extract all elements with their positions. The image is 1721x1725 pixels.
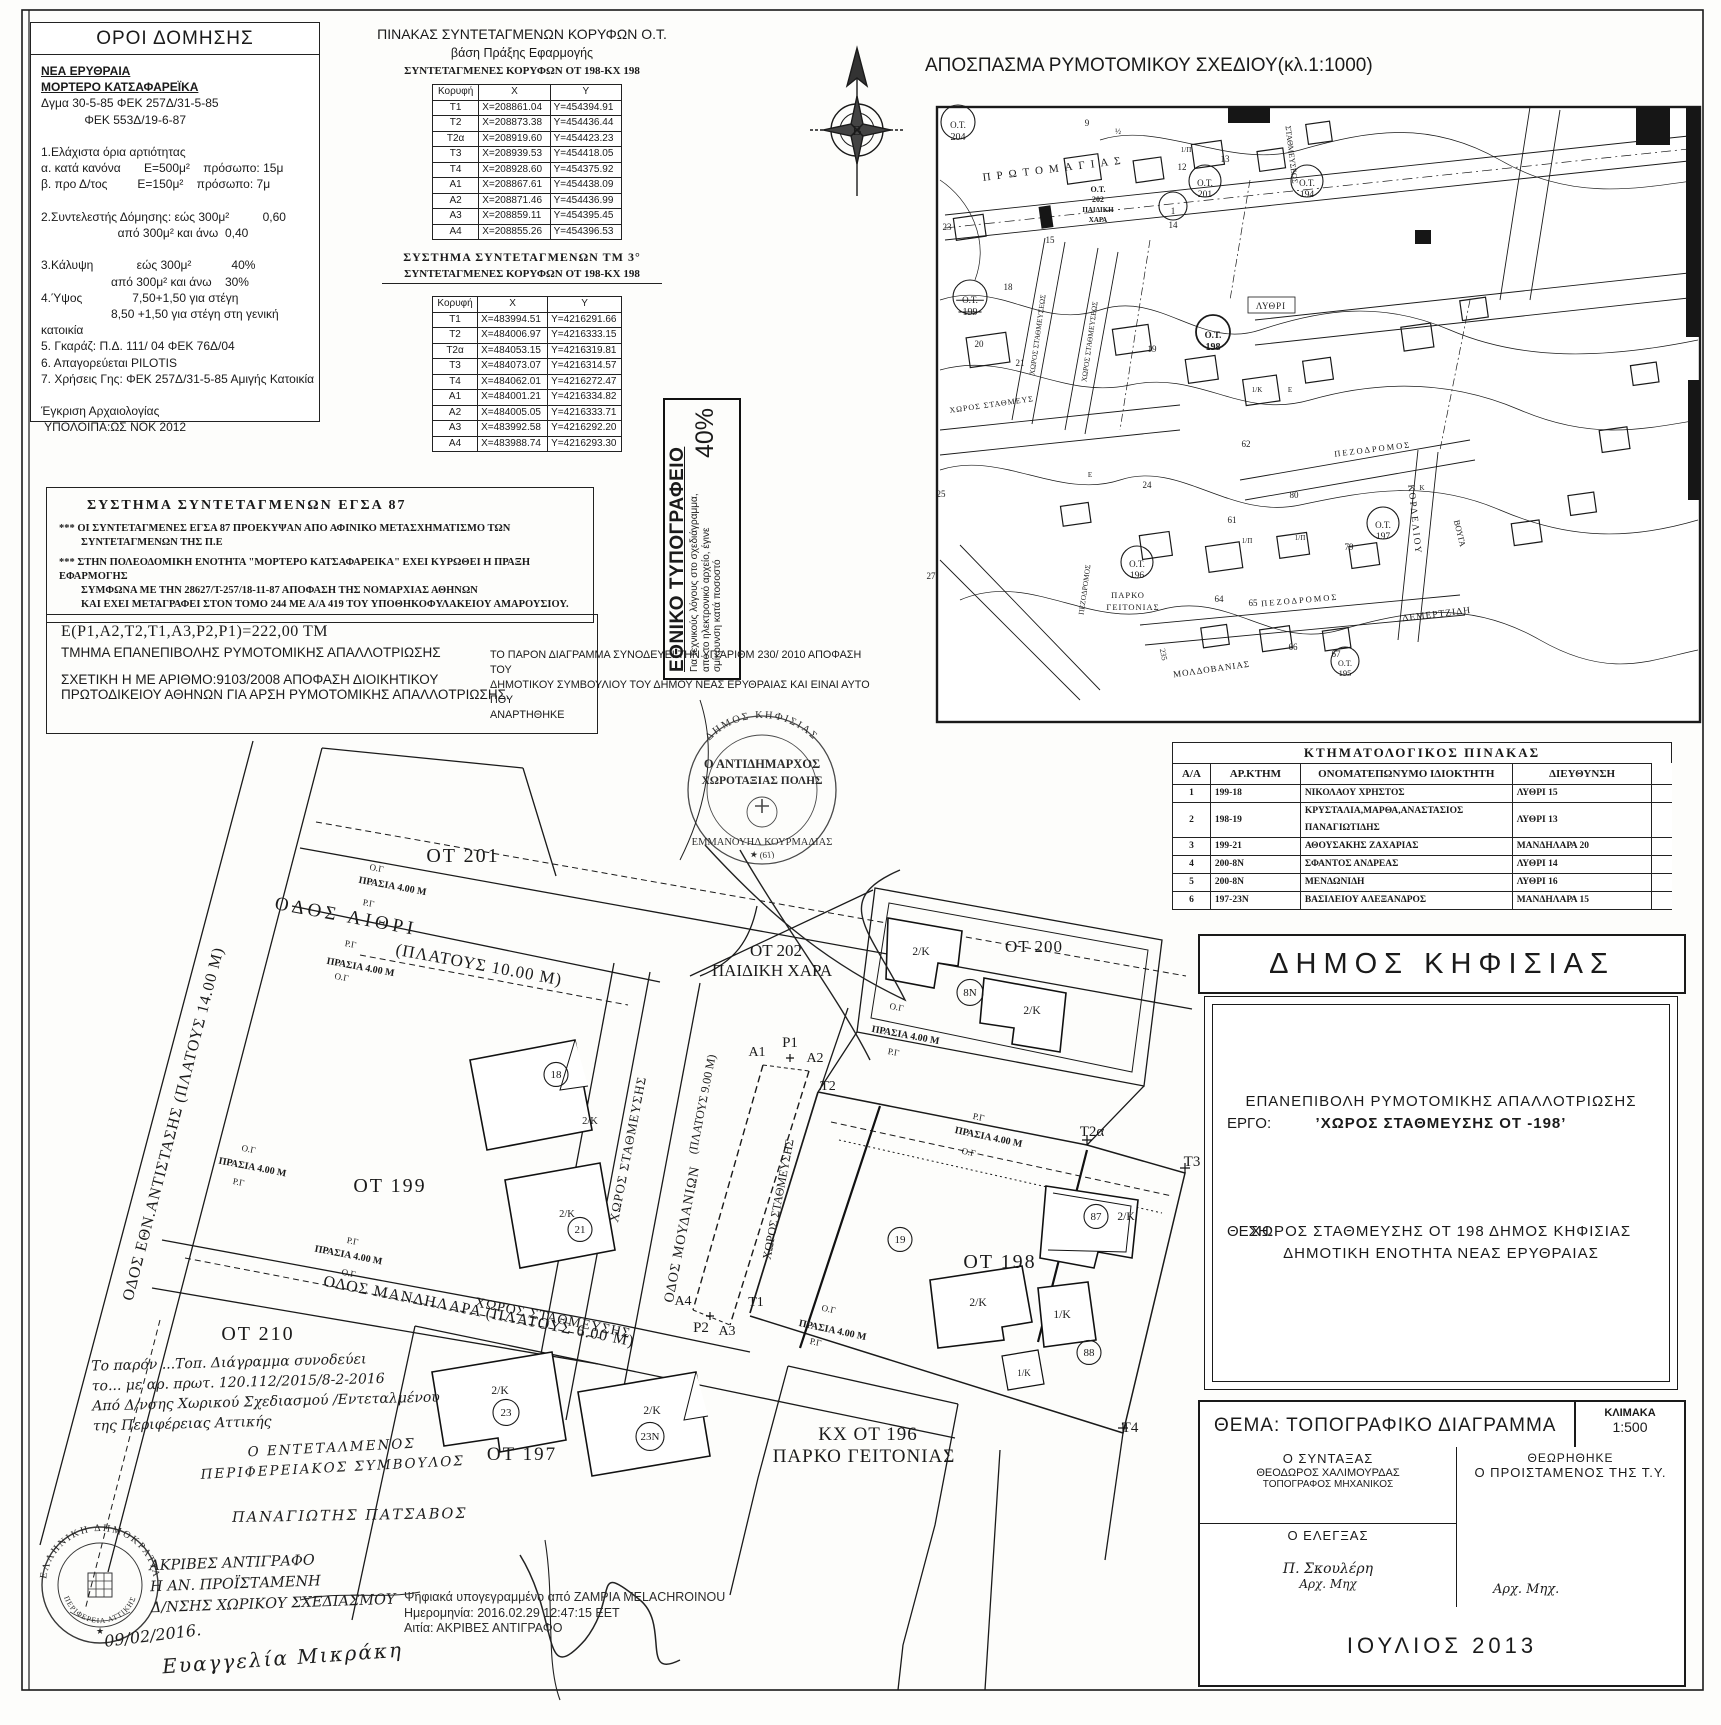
table-cell: X=208871.46: [479, 193, 550, 209]
col-header: X: [478, 297, 548, 313]
site-plan-label: Ο.Γ: [821, 1303, 837, 1316]
project-box-inner: ΕΡΓΟ: ΕΠΑΝΕΠΙΒΟΛΗ ΡΥΜΟΤΟΜΙΚΗΣ ΑΠΑΛΛΟΤΡΙΩ…: [1212, 1004, 1670, 1382]
inset-ot-195-num: 195: [1339, 668, 1352, 678]
inset-map-label: 25: [937, 489, 947, 499]
street-xoros-stath-1: ΧΩΡΟΣ ΣΤΑΘΜΕΥΣΗΣ: [606, 1075, 649, 1224]
table-cell: ΚΡΥΣΤΑΛΙΑ,ΜΑΡΘΑ,ΑΝΑΣΤΑΣΙΟΣ ΠΑΝΑΓΙΩΤΙΔΗΣ: [1300, 803, 1512, 838]
digsig-line: Ημερομηνία: 2016.02.29 12:47:15 EET: [404, 1606, 725, 1622]
table-cell: X=484001.21: [478, 390, 548, 406]
col-header: Κορυφή: [433, 297, 478, 313]
block-ot-210: ΟΤ 210: [221, 1323, 294, 1345]
inset-map-label: 23: [943, 222, 953, 232]
table-cell: ΣΦΑΝΤΟΣ ΑΝΔΡΕΑΣ: [1300, 856, 1512, 874]
egsa-note: *** ΟΙ ΣΥΝΤΕΤΑΓΜΕΝΕΣ ΕΓΣΑ 87 ΠΡΟΕΚΥΨΑΝ Α…: [59, 522, 581, 536]
site-plan-label: ΠΡΑΣΙΑ 4.00 Μ: [871, 1024, 941, 1047]
table-row: Α3X=483992.58Y=4216292.20: [433, 421, 622, 437]
site-plan-label: Ο.Γ: [241, 1143, 257, 1155]
table-cell: [1652, 874, 1672, 892]
table-cell: Y=454436.44: [550, 116, 621, 132]
site-plan-label: ΠΡΑΣΙΑ 4.00 Μ: [218, 1156, 288, 1180]
handnote-certified-copy: ΑΚΡΙΒΕΣ ΑΝΤΙΓΡΑΦΟ Η ΑΝ. ΠΡΟΪΣΤΑΜΕΝΗ Δ/ΝΣ…: [149, 1548, 396, 1620]
egsa-note: ΣΥΝΤΕΤΑΓΜΕΝΩΝ ΤΗΣ Π.Ε: [81, 536, 581, 550]
inset-map-label: Ε: [1288, 386, 1292, 394]
block-kx-ot-196-l2: ΠΑΡΚΟ ΓΕΙΤΟΝΙΑΣ: [773, 1446, 956, 1467]
pt-t2: Τ2: [820, 1079, 836, 1094]
table-cell: Y=454436.99: [550, 193, 621, 209]
pt-t2a: Τ2α: [1080, 1124, 1105, 1140]
inset-map-label: 18: [1004, 282, 1014, 292]
table-cell: ΜΑΝΔΗΛΑΡΑ 20: [1512, 838, 1652, 856]
inset-map-label: Κ: [1419, 484, 1424, 492]
table-cell: ΛΥΘΡΙ 16: [1512, 874, 1652, 892]
table-cell: Τ2: [433, 328, 478, 344]
table-cell: Τ1: [433, 312, 478, 328]
inset-map-label: 65: [1249, 598, 1259, 608]
table-cell: ΛΥΘΡΙ 14: [1512, 856, 1652, 874]
block-ot-202: ΟΤ 202: [750, 941, 802, 960]
inset-map-label: 12: [1178, 162, 1187, 172]
street-mandilara: ΟΔΟΣ ΜΑΝΔΗΛΑΡΑ (ΠΛΑΤΟΥΣ 6.00 Μ): [322, 1273, 636, 1350]
egsa-note: ΚΑΙ ΕΧΕΙ ΜΕΤΑΓΡΑΦΕΙ ΣΤΟΝ ΤΟΜΟ 244 ΜΕ Α/Α…: [81, 598, 581, 612]
scale-cell: ΚΛΙΜΑΚΑ 1:500: [1574, 1402, 1684, 1449]
table-row: 4200-8ΝΣΦΑΝΤΟΣ ΑΝΔΡΕΑΣΛΥΘΡΙ 14: [1173, 856, 1673, 874]
building-terms-line: 4.Ύψος 7,50+1,50 για στέγη: [41, 290, 309, 306]
block-ot-197: ΟΤ 197: [487, 1444, 557, 1465]
block-ot-200: ΟΤ 200: [1005, 937, 1063, 956]
street-moudanion-width: (ΠΛΑΤΟΥΣ 9.00 Μ): [686, 1053, 719, 1155]
table-cell: X=484053.15: [478, 343, 548, 359]
table-row: 1199-18ΝΙΚΟΛΑΟΥ ΧΡΗΣΤΟΣΛΥΘΡΙ 15: [1173, 785, 1673, 803]
site-plan-label: ΠΡΑΣΙΑ 4.00 Μ: [798, 1318, 868, 1343]
site-plan-label: Ρ.Γ: [887, 1046, 900, 1058]
subject-title: ΘΕΜΑ: ΤΟΠΟΓΡΑΦΙΚΟ ΔΙΑΓΡΑΜΜΑ: [1200, 1402, 1574, 1449]
table-cell: Y=4216292.20: [548, 421, 622, 437]
table-row: 5200-8ΝΜΕΝΔΩΝΙΔΗΛΥΘΡΙ 16: [1173, 874, 1673, 892]
inset-map-label: 62: [1242, 439, 1251, 449]
bld-2k-ot200-a: 2/Κ: [912, 946, 930, 958]
table-cell: [1652, 892, 1672, 910]
table-cell: Y=454423.23: [550, 131, 621, 147]
bld-88: 88: [1084, 1347, 1096, 1359]
council-annotation: ΤΟ ΠΑΡΟΝ ΔΙΑΓΡΑΜΜΑ ΣΥΝΟΔΕΥΕΙ ΤΗΝ ΥΠ'ΑΡΙΘ…: [490, 648, 870, 723]
table-cell: X=208867.61: [479, 178, 550, 194]
col-header: [1652, 764, 1672, 785]
inset-ot-202: Ο.Τ.: [1091, 185, 1106, 194]
table-row: Τ3X=484073.07Y=4216314.57: [433, 359, 622, 375]
table-cell: Τ3: [433, 359, 478, 375]
street-moudanion: ΟΔΟΣ ΜΟΥΔΑΝΙΩΝ: [662, 1165, 703, 1304]
table-cell: Y=454418.05: [550, 147, 621, 163]
building-terms-line: [41, 128, 309, 144]
location-line-2: ΔΗΜΟΤΙΚΗ ΕΝΟΤΗΤΑ ΝΕΑΣ ΕΡΥΘΡΑΙΑΣ: [1213, 1245, 1669, 1262]
building-terms-line: 7. Χρήσεις Γης: ΦΕΚ 257Δ/31-5-85 Αμιγής …: [41, 371, 309, 387]
inset-frac-num: 1: [1171, 206, 1176, 216]
site-plan-label: Ρ.Γ: [972, 1111, 985, 1123]
table-row: Τ1X=208861.04Y=454394.91: [433, 100, 622, 116]
building-terms-body: ΝΕΑ ΕΡΥΘΡΑΙΑΜΟΡΤΕΡΟ ΚΑΤΣΑΦΑΡΕΪΚΑΔγμα 30-…: [31, 55, 319, 444]
table-cell: X=208861.04: [479, 100, 550, 116]
table-row: Α1X=208867.61Y=454438.09: [433, 178, 622, 194]
pt-a3: Α3: [718, 1324, 735, 1339]
inset-ot-194-num: 194: [1300, 190, 1315, 200]
area-formula: Ε(Ρ1,Α2,Τ2,Τ1,Α3,Ρ2,Ρ1)=222,00 ΤΜ: [61, 623, 583, 641]
cadastral-title: ΚΤΗΜΑΤΟΛΟΓΙΚΟΣ ΠΙΝΑΚΑΣ: [1172, 742, 1672, 763]
table-row: Α2X=208871.46Y=454436.99: [433, 193, 622, 209]
col-header: ΔΙΕΥΘΥΝΣΗ: [1512, 764, 1652, 785]
handnote-protocol: Το παρόν ...Τοπ. Διάγραμμα συνοδεύει το.…: [91, 1347, 441, 1436]
building-terms-line: από 300μ² και άνω 30%: [41, 274, 309, 290]
egsa-title: ΣΥΣΤΗΜΑ ΣΥΝΤΕΤΑΓΜΕΝΩΝ ΕΓΣΑ 87: [87, 498, 581, 514]
table-row: Τ2αX=484053.15Y=4216319.81: [433, 343, 622, 359]
table-cell: Τ1: [433, 100, 479, 116]
table-cell: Α1: [433, 178, 479, 194]
pt-t4: Τ4: [1122, 1420, 1139, 1436]
table-row: Α2X=484005.05Y=4216333.71: [433, 405, 622, 421]
stamp-title-1: Ο ΑΝΤΙΔΗΜΑΡΧΟΣ: [704, 757, 820, 771]
table-row: Τ4X=484062.01Y=4216272.47: [433, 374, 622, 390]
inset-ot-198-num: 198: [1206, 342, 1221, 353]
bld-18: 18: [551, 1069, 563, 1081]
table-cell: ΜΑΝΔΗΛΑΡΑ 15: [1512, 892, 1652, 910]
table-cell: 5: [1173, 874, 1211, 892]
drafter-label: Ο ΣΥΝΤΑΞΑΣ: [1200, 1451, 1456, 1466]
coords-table-tm3: Κορυφή X Y Τ1X=483994.51Y=4216291.66Τ2X=…: [432, 296, 622, 452]
table-cell: X=208873.38: [479, 116, 550, 132]
inset-ot-202-l1: ΠΑΙΔΙΚΗ: [1082, 206, 1114, 214]
table-cell: Y=4216272.47: [548, 374, 622, 390]
approved-label: ΘΕΩΡΗΘΗΚΕ: [1457, 1451, 1684, 1465]
block-kx-ot-196: ΚΧ ΟΤ 196: [818, 1424, 917, 1445]
approver-title: Αρχ. Μηχ.: [1493, 1582, 1559, 1597]
project-line-1: ΕΠΑΝΕΠΙΒΟΛΗ ΡΥΜΟΤΟΜΙΚΗΣ ΑΠΑΛΛΟΤΡΙΩΣΗΣ: [1213, 1093, 1669, 1110]
digsig-line: Αιτία: ΑΚΡΙΒΕΣ ΑΝΤΙΓΡΑΦΟ: [404, 1621, 725, 1637]
inset-map-label: 21: [1016, 358, 1025, 368]
checker-label: Ο ΕΛΕΓΞΑΣ: [1200, 1528, 1456, 1543]
bld-19: 19: [895, 1234, 907, 1246]
inset-map-label: 79: [1345, 542, 1355, 552]
building-terms-line: από 300μ² και άνω 0,40: [41, 225, 309, 241]
inset-map-label: 13: [1221, 154, 1231, 164]
inset-ot-197: Ο.Τ.: [1375, 520, 1391, 530]
table-cell: 6: [1173, 892, 1211, 910]
vice-mayor-signature: [680, 700, 905, 1060]
pt-p1: Ρ1: [782, 1035, 798, 1051]
building-terms-line: ΦΕΚ 553Δ/19-6-87: [41, 112, 309, 128]
table-cell: ΒΑΣΙΛΕΙΟΥ ΑΛΕΞΑΝΔΡΟΣ: [1300, 892, 1512, 910]
table-row: 3199-21ΑΘΟΥΣΑΚΗΣ ΖΑΧΑΡΙΑΣΜΑΝΔΗΛΑΡΑ 20: [1173, 838, 1673, 856]
printing-title: ΕΘΝΙΚΟ ΤΥΠΟΓΡΑΦΕΙΟ: [667, 406, 689, 672]
approver-cell: ΘΕΩΡΗΘΗΚΕ Ο ΠΡΟΙΣΤΑΜΕΝΟΣ ΤΗΣ Τ.Υ. Αρχ. Μ…: [1457, 1447, 1684, 1607]
project-box: ΕΡΓΟ: ΕΠΑΝΕΠΙΒΟΛΗ ΡΥΜΟΤΟΜΙΚΗΣ ΑΠΑΛΛΟΤΡΙΩ…: [1204, 996, 1678, 1390]
location-line-1: ΧΩΡΟΣ ΣΤΑΘΜΕΥΣΗΣ ΟΤ 198 ΔΗΜΟΣ ΚΗΦΙΣΙΑΣ: [1213, 1223, 1669, 1240]
table-row: 6197-23ΝΒΑΣΙΛΕΙΟΥ ΑΛΕΞΑΝΔΡΟΣΜΑΝΔΗΛΑΡΑ 15: [1173, 892, 1673, 910]
building-terms-line: Δγμα 30-5-85 ΦΕΚ 257Δ/31-5-85: [41, 95, 309, 111]
table-cell: Α3: [433, 421, 478, 437]
annotation-line: ΤΟ ΠΑΡΟΝ ΔΙΑΓΡΑΜΜΑ ΣΥΝΟΔΕΥΕΙ ΤΗΝ ΥΠ'ΑΡΙΘ…: [490, 648, 870, 678]
table-cell: 4: [1173, 856, 1211, 874]
checker-signature: Π. Σκουλέρη: [1200, 1561, 1456, 1577]
inset-ot-201: Ο.Τ.: [1197, 178, 1213, 188]
col-header: Κορυφή: [433, 85, 479, 101]
coords-table-title: ΠΙΝΑΚΑΣ ΣΥΝΤΕΤΑΓΜΕΝΩΝ ΚΟΡΥΦΩΝ Ο.Τ.: [362, 26, 682, 42]
inset-ot-197-num: 197: [1376, 532, 1391, 542]
street-lithri: ΟΔΟΣ ΛΙΘΡΙ: [273, 893, 419, 940]
coords-table-subtitle: βάση Πράξης Εφαρμογής: [362, 46, 682, 60]
table-cell: Α2: [433, 193, 479, 209]
checker-title: Αρχ. Μηχ: [1200, 1577, 1456, 1591]
inset-map-label: 27: [927, 571, 937, 581]
municipality-title: ΔΗΜΟΣ ΚΗΦΙΣΙΑΣ: [1198, 934, 1686, 994]
table-cell: X=483988.74: [478, 436, 548, 452]
table-cell: Α2: [433, 405, 478, 421]
table-row: Α4X=208855.26Y=454396.53: [433, 224, 622, 240]
pt-a4: Α4: [674, 1294, 691, 1309]
scale-label: ΚΛΙΜΑΚΑ: [1576, 1407, 1684, 1419]
table-cell: X=208855.26: [479, 224, 550, 240]
building-terms-line: 2.Συντελεστής Δόμησης: εώς 300μ² 0,60: [41, 209, 309, 225]
table-row: Τ4X=208928.60Y=454375.92: [433, 162, 622, 178]
project-line-2: ’ΧΩΡΟΣ ΣΤΑΘΜΕΥΣΗΣ ΟΤ -198’: [1213, 1115, 1669, 1132]
annotation-line: ΑΝΑΡΤΗΘΗΚΕ: [490, 708, 870, 723]
site-plan-label: Ρ.Γ: [346, 1235, 359, 1247]
inset-map-label: 67: [1332, 649, 1342, 659]
drafter-cell: Ο ΣΥΝΤΑΞΑΣ ΘΕΟΔΩΡΟΣ ΧΑΛΙΜΟΥΡΔΑΣ ΤΟΠΟΓΡΑΦ…: [1200, 1447, 1456, 1524]
table-row: Τ2αX=208919.60Y=454423.23: [433, 131, 622, 147]
table-row: Τ3X=208939.53Y=454418.05: [433, 147, 622, 163]
table-cell: Y=4216314.57: [548, 359, 622, 375]
north-compass: Β: [810, 48, 904, 196]
inset-map-label: 15: [1046, 235, 1056, 245]
table-cell: Τ4: [433, 162, 479, 178]
col-header: X: [479, 85, 550, 101]
table-cell: X=208859.11: [479, 209, 550, 225]
building-terms-line: [41, 193, 309, 209]
inset-map-label: 1/Π: [1181, 146, 1192, 154]
building-terms-line: 8,50 +1,50 για στέγη στη γενική: [41, 306, 309, 322]
inset-ot-202-l2: ΧΑΡΑ: [1089, 216, 1107, 224]
table-cell: ΜΕΝΔΩΝΙΔΗ: [1300, 874, 1512, 892]
scale-value: 1:500: [1576, 1419, 1684, 1435]
bld-2k-ot197-a: 2/Κ: [491, 1385, 509, 1397]
inset-map-label: 24: [1143, 480, 1153, 490]
table-cell: Τ3: [433, 147, 479, 163]
building-terms-line: 3.Κάλυψη εώς 300μ² 40%: [41, 257, 309, 273]
table-cell: Y=454396.53: [550, 224, 621, 240]
egsa-note: *** ΣΤΗΝ ΠΟΛΕΟΔΟΜΙΚΗ ΕΝΟΤΗΤΑ "ΜΟΡΤΕΡΟ ΚΑ…: [59, 556, 581, 584]
building-terms-line: ΜΟΡΤΕΡΟ ΚΑΤΣΑΦΑΡΕΪΚΑ: [41, 79, 309, 95]
table-cell: Τ2: [433, 116, 479, 132]
table-cell: [1652, 803, 1672, 838]
table-cell: ΑΘΟΥΣΑΚΗΣ ΖΑΧΑΡΙΑΣ: [1300, 838, 1512, 856]
bld-1k-ot198: 1/Κ: [1053, 1309, 1071, 1321]
stamp-title-2: ΧΩΡΟΤΑΞΙΑΣ ΠΟΛΗΣ: [701, 775, 822, 787]
building-terms-box: ΟΡΟΙ ΔΟΜΗΣΗΣ ΝΕΑ ΕΡΥΘΡΑΙΑΜΟΡΤΕΡΟ ΚΑΤΣΑΦΑ…: [30, 22, 320, 422]
table-cell: 199-18: [1210, 785, 1300, 803]
block-ot-199: ΟΤ 199: [353, 1175, 426, 1197]
region-stamp-ring: ΕΛΛΗΝΙΚΗ ΔΗΜΟΚΡΑΤΙΑ: [38, 1523, 161, 1580]
region-stamp-inner: ΠΕΡΙΦΕΡΕΙΑ ΑΤΤΙΚΗΣ: [62, 1595, 138, 1626]
bld-2k-ot199-b: 2/Κ: [559, 1209, 575, 1220]
pt-p2: Ρ2: [693, 1320, 709, 1336]
table-cell: Τ2α: [433, 343, 478, 359]
inset-ot-195: Ο.Τ.: [1338, 659, 1352, 668]
egsa-note: ΣΥΜΦΩΝΑ ΜΕ ΤΗΝ 28627/Τ-257/18-11-87 ΑΠΟΦ…: [81, 584, 581, 598]
checker-cell: Ο ΕΛΕΓΞΑΣ Π. Σκουλέρη Αρχ. Μηχ: [1200, 1524, 1456, 1607]
inset-ot-198: Ο.Τ.: [1205, 330, 1222, 340]
inset-ot-204-num: 204: [951, 132, 966, 143]
digsig-line: Ψηφιακά υπογεγραμμένο από ZAMPIA MELACHR…: [404, 1590, 725, 1606]
bld-23n: 23Ν: [641, 1431, 660, 1443]
table-cell: 200-8Ν: [1210, 856, 1300, 874]
inset-map-label: 80: [1290, 490, 1300, 500]
table-cell: Y=454438.09: [550, 178, 621, 194]
table-cell: Y=454395.45: [550, 209, 621, 225]
table-cell: X=208928.60: [479, 162, 550, 178]
table-cell: Y=4216291.66: [548, 312, 622, 328]
building-terms-title: ΟΡΟΙ ΔΟΜΗΣΗΣ: [31, 23, 319, 55]
egsa-note-box: ΣΥΣΤΗΜΑ ΣΥΝΤΕΤΑΓΜΕΝΩΝ ΕΓΣΑ 87 *** ΟΙ ΣΥΝ…: [46, 487, 594, 623]
table-cell: Α4: [433, 224, 479, 240]
site-plan-label: Ο.Γ: [369, 862, 385, 874]
table-cell: X=208919.60: [479, 131, 550, 147]
site-plan-label: Ο.Γ: [961, 1146, 977, 1159]
table-cell: 197-23Ν: [1210, 892, 1300, 910]
building-terms-line: ΝΕΑ ΕΡΥΘΡΑΙΑ: [41, 63, 309, 79]
table-cell: [1652, 856, 1672, 874]
table-cell: 2: [1173, 803, 1211, 838]
col-header: Α/Α: [1173, 764, 1211, 785]
table-cell: X=483992.58: [478, 421, 548, 437]
inset-map-label: 20: [975, 339, 985, 349]
inset-map-label: 9: [1085, 118, 1090, 128]
table-row: Α4X=483988.74Y=4216293.30: [433, 436, 622, 452]
signature-block: Ο ΣΥΝΤΑΞΑΣ ΘΕΟΔΩΡΟΣ ΧΑΛΙΜΟΥΡΔΑΣ ΤΟΠΟΓΡΑΦ…: [1198, 1447, 1686, 1609]
site-plan-label: Ρ.Γ: [809, 1336, 822, 1348]
inset-ot-194: Ο.Τ.: [1299, 178, 1315, 188]
street-xoros-stath-2: ΧΩΡΟΣ ΣΤΑΘΜΕΥΣΗΣ: [760, 1138, 797, 1261]
col-header: ΑΡ.ΚΤΗΜ: [1210, 764, 1300, 785]
table-cell: [1652, 785, 1672, 803]
table-row: Τ2X=208873.38Y=454436.44: [433, 116, 622, 132]
building-terms-line: [41, 241, 309, 257]
bld-2k-ot200-b: 2/Κ: [1023, 1005, 1041, 1017]
inset-ot-196: Ο.Τ.: [1129, 559, 1145, 569]
inset-map-label: 1/Π: [1295, 534, 1306, 542]
inset-map-label: 1/Π: [1242, 537, 1253, 545]
street-lithri-width: (ΠΛΑΤΟΥΣ 10.00 Μ): [394, 940, 564, 989]
table-cell: Τ4: [433, 374, 478, 390]
bld-2k-ot198: 2/Κ: [969, 1297, 987, 1309]
inset-ot-204: Ο.Τ.: [950, 120, 966, 130]
building-terms-line: β. προ Δ/τος Ε=150μ² πρόσωπο: 7μ: [41, 176, 309, 192]
table-row: Τ1X=483994.51Y=4216291.66: [433, 312, 622, 328]
building-terms-line: α. κατά κανόνα Ε=500μ² πρόσωπο: 15μ: [41, 160, 309, 176]
table-cell: Y=454394.91: [550, 100, 621, 116]
approver-label: Ο ΠΡΟΙΣΤΑΜΕΝΟΣ ΤΗΣ Τ.Υ.: [1457, 1465, 1684, 1480]
bld-23: 23: [501, 1407, 513, 1419]
coords-table-caption: ΣΥΝΤΕΤΑΓΜΕΝΕΣ ΚΟΡΥΦΩΝ ΟΤ 198-ΚΧ 198: [362, 65, 682, 77]
date-row: ΙΟΥΛΙΟΣ 2013: [1198, 1607, 1686, 1687]
inset-street-lythri: ΛΥΘΡΙ: [1256, 301, 1286, 311]
coords2-caption: ΣΥΝΤΕΤΑΓΜΕΝΕΣ ΚΟΡΥΦΩΝ ΟΤ 198-ΚΧ 198: [382, 268, 662, 284]
bld-2k-ot197-b: 2/Κ: [643, 1405, 661, 1417]
table-cell: ΛΥΘΡΙ 15: [1512, 785, 1652, 803]
inset-map: ΠΡΩΤΟΜΑΓΙΑΣΛΥΘΡΙΧΩΡΟΣ ΣΤΑΘΜΕΥΣΕΩΣΧΩΡΟΣ Σ…: [927, 81, 1701, 722]
table-row: Α3X=208859.11Y=454395.45: [433, 209, 622, 225]
digital-signature: Ψηφιακά υπογεγραμμένο από ZAMPIA MELACHR…: [404, 1590, 725, 1637]
table-cell: X=483994.51: [478, 312, 548, 328]
building-terms-line: 5. Γκαράζ: Π.Δ. 111/ 04 ΦΕΚ 76Δ/04: [41, 338, 309, 354]
building-terms-line: κατοικία: [41, 322, 309, 338]
inset-map-label: 64: [1215, 594, 1225, 604]
table-row: Τ2X=484006.97Y=4216333.15: [433, 328, 622, 344]
inset-ot-201-num: 201: [1198, 190, 1213, 200]
table-cell: [1652, 838, 1672, 856]
pt-t1: Τ1: [748, 1295, 764, 1310]
building-terms-line: 6. Απαγορεύεται PILOTIS: [41, 355, 309, 371]
table-row: 2198-19ΚΡΥΣΤΑΛΙΑ,ΜΑΡΘΑ,ΑΝΑΣΤΑΣΙΟΣ ΠΑΝΑΓΙ…: [1173, 803, 1673, 838]
block-ot-201: ΟΤ 201: [426, 845, 499, 867]
table-cell: Y=4216319.81: [548, 343, 622, 359]
table-cell: Y=4216333.71: [548, 405, 622, 421]
bld-2k-87: 2/Κ: [1117, 1211, 1135, 1223]
table-cell: 1: [1173, 785, 1211, 803]
coords2-title: ΣΥΣΤΗΜΑ ΣΥΝΤΕΤΑΓΜΕΝΩΝ ΤΜ 3°: [362, 250, 682, 265]
table-cell: X=208939.53: [479, 147, 550, 163]
bld-1k-small: 1/Κ: [1017, 1368, 1031, 1378]
col-header: ΟΝΟΜΑΤΕΠΩΝΥΜΟ ΙΔΙΟΚΤΗΤΗ: [1300, 764, 1512, 785]
subject-row: ΘΕΜΑ: ΤΟΠΟΓΡΑΦΙΚΟ ΔΙΑΓΡΑΜΜΑ ΚΛΙΜΑΚΑ 1:50…: [1198, 1400, 1686, 1451]
site-plan-label: ΠΡΑΣΙΑ 4.00 Μ: [314, 1244, 384, 1268]
stamp-name: ΕΜΜΑΝΟΥΗΛ ΚΟΥΡΜΑΔΙΑΣ: [692, 837, 833, 848]
inset-map-label: 1/Κ: [1252, 386, 1263, 394]
table-cell: Y=4216293.30: [548, 436, 622, 452]
reduction-percent: 40%: [691, 408, 720, 458]
table-cell: X=484005.05: [478, 405, 548, 421]
site-plan-label: Ρ.Γ: [232, 1176, 245, 1188]
table-cell: X=484006.97: [478, 328, 548, 344]
inset-ot-196-num: 196: [1130, 571, 1145, 581]
svg-text:ΕΛΛΗΝΙΚΗ ΔΗΜΟΚΡΑΤΙΑ: ΕΛΛΗΝΙΚΗ ΔΗΜΟΚΡΑΤΙΑ: [38, 1523, 161, 1580]
site-plan-label: Ρ.Γ: [344, 938, 357, 950]
inset-frac-den: 14: [1169, 220, 1179, 230]
col-header: Y: [548, 297, 622, 313]
table-cell: ΝΙΚΟΛΑΟΥ ΧΡΗΣΤΟΣ: [1300, 785, 1512, 803]
block-ot-202-l2: ΠΑΙΔΙΚΗ ΧΑΡΑ: [712, 961, 833, 980]
region-stamp: ★ ΕΛΛΗΝΙΚΗ ΔΗΜΟΚΡΑΤΙΑ ΠΕΡΙΦΕΡΕΙΑ ΑΤΤΙΚΗΣ: [38, 1523, 161, 1643]
bld-21: 21: [575, 1224, 586, 1236]
pt-a1: Α1: [748, 1045, 765, 1060]
site-plan-label: ΠΡΑΣΙΑ 4.00 Μ: [358, 875, 428, 898]
table-cell: Y=4216333.15: [548, 328, 622, 344]
building-terms-line: [41, 387, 309, 403]
drafter-name: ΘΕΟΔΩΡΟΣ ΧΑΛΙΜΟΥΡΔΑΣ: [1200, 1467, 1456, 1479]
table-cell: X=484062.01: [478, 374, 548, 390]
building-terms-line: ΥΠΟΛΟΙΠΑ:ΩΣ ΝΟΚ 2012: [41, 419, 309, 435]
table-cell: 199-21: [1210, 838, 1300, 856]
inset-geitonias: ΓΕΙΤΟΝΙΑΣ: [1106, 602, 1159, 612]
svg-text:ΠΕΡΙΦΕΡΕΙΑ ΑΤΤΙΚΗΣ: ΠΕΡΙΦΕΡΕΙΑ ΑΤΤΙΚΗΣ: [62, 1595, 138, 1626]
table-cell: ΛΥΘΡΙ 13: [1512, 803, 1652, 838]
compass-letter: Β: [852, 124, 861, 139]
site-plan-label: Ο.Γ: [334, 971, 350, 983]
inset-map-label: 19: [1148, 344, 1158, 354]
table-cell: X=484073.07: [478, 359, 548, 375]
svg-text:★ (61): ★ (61): [749, 849, 775, 860]
bld-87: 87: [1091, 1211, 1103, 1223]
table-cell: 3: [1173, 838, 1211, 856]
table-row: Α1X=484001.21Y=4216334.82: [433, 390, 622, 406]
